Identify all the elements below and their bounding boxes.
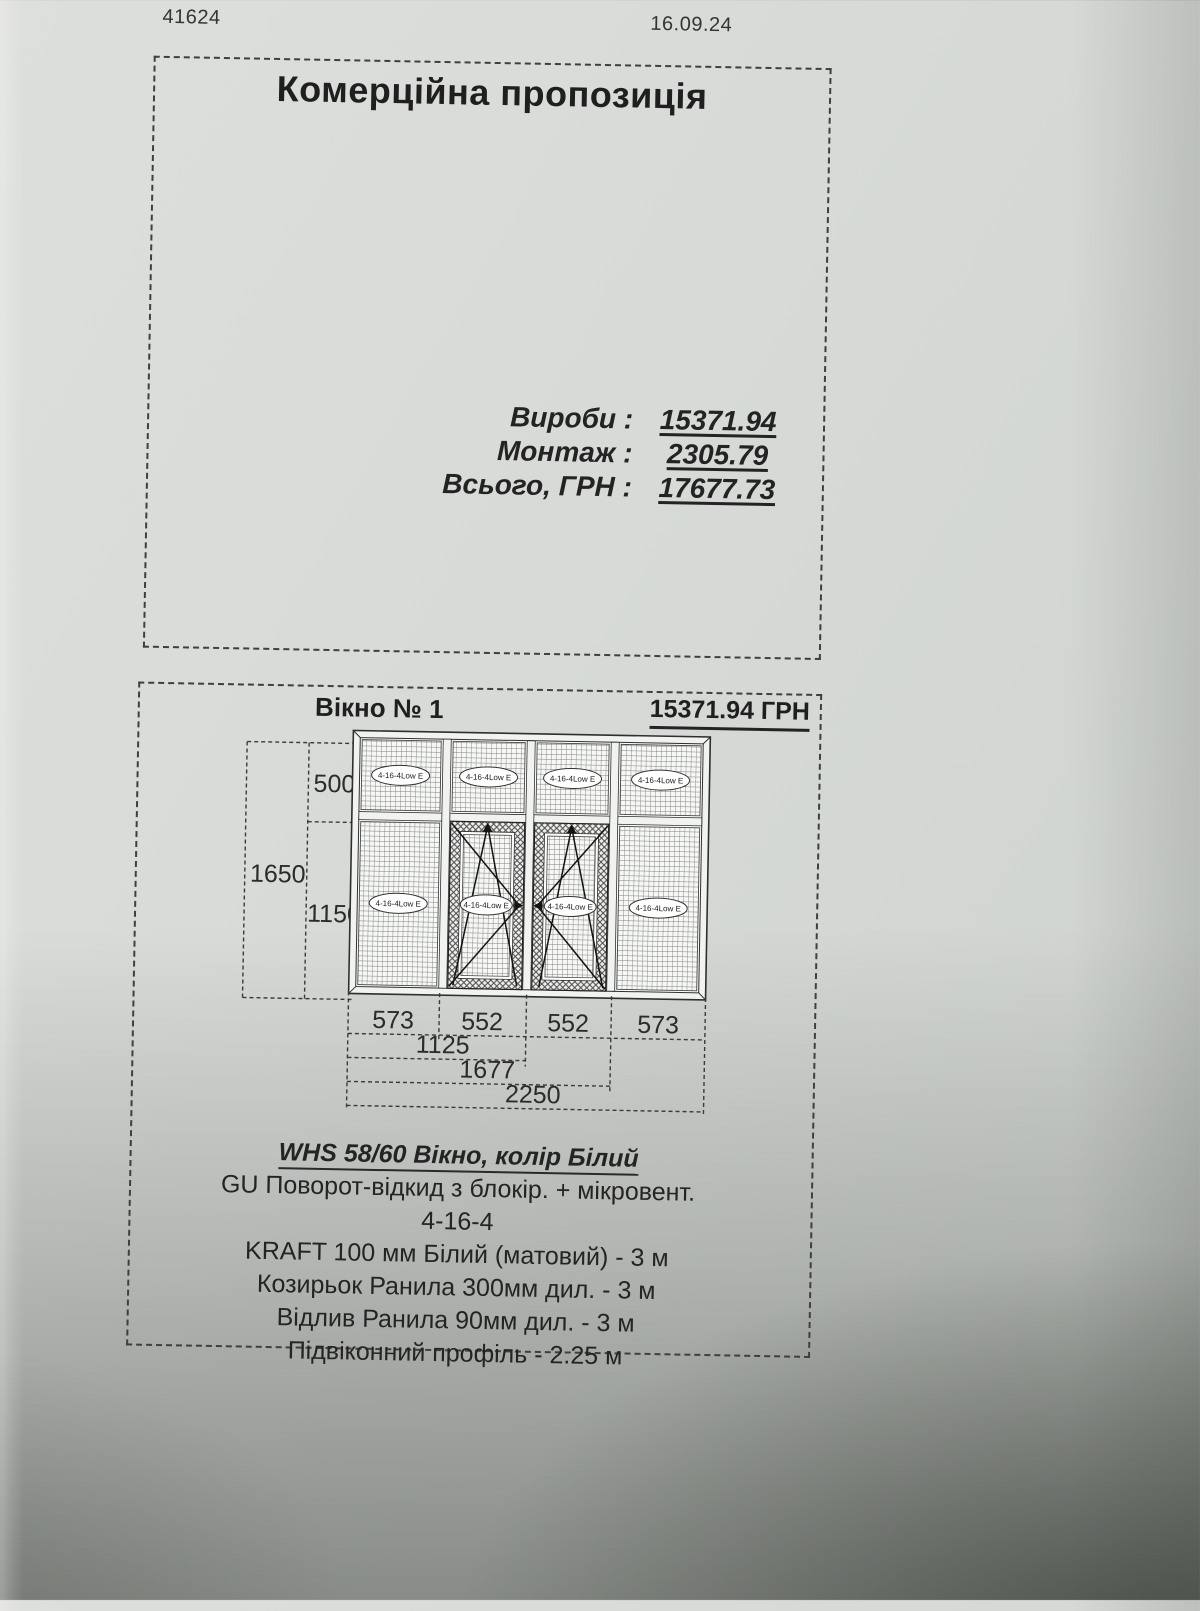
dim-height-top: 500	[313, 770, 355, 799]
doc-date: 16.09.24	[650, 13, 732, 37]
dim-width-4: 573	[637, 1011, 679, 1040]
glass-label: 4-16-4Low E	[375, 899, 421, 909]
glass-label: 4-16-4Low E	[466, 773, 512, 783]
glass-label: 4-16-4Low E	[638, 776, 684, 786]
photographed-document: 41624 16.09.24 Комерційна пропозиція Вир…	[0, 0, 1200, 1611]
totals-value-installation: 2305.79	[632, 437, 803, 474]
glass-label: 4-16-4Low E	[547, 902, 593, 912]
totals-block: Вироби : 15371.94 Монтаж : 2305.79 Всьог…	[246, 395, 804, 507]
glass-label: 4-16-4Low E	[635, 904, 681, 914]
dim-height-total: 1650	[250, 860, 306, 889]
proposal-box: Комерційна пропозиція	[143, 56, 832, 660]
window-description: WHS 58/60 Вікно, колір Білий GU Поворот-…	[115, 1133, 799, 1376]
doc-number: 41624	[162, 6, 221, 30]
glass-label: 4-16-4Low E	[550, 774, 596, 784]
totals-label-products: Вироби :	[510, 400, 634, 436]
glass-label: 4-16-4Low E	[378, 771, 424, 781]
totals-value-products: 15371.94	[633, 403, 804, 440]
totals-label-total: Всього, ГРН :	[442, 467, 632, 504]
dim-width-total: 2250	[505, 1080, 561, 1109]
window-price: 15371.94 ГРН	[580, 694, 811, 732]
window-title: Вікно № 1	[257, 691, 503, 726]
dim-width-1: 573	[372, 1006, 414, 1035]
glass-label: 4-16-4Low E	[463, 901, 509, 911]
page-title: Комерційна пропозиція	[155, 58, 830, 120]
totals-value-total: 17677.73	[632, 471, 803, 508]
window-diagram: 500 1650 1150	[224, 723, 731, 1126]
dim-width-3: 552	[547, 1009, 589, 1038]
totals-label-installation: Монтаж :	[497, 434, 633, 470]
